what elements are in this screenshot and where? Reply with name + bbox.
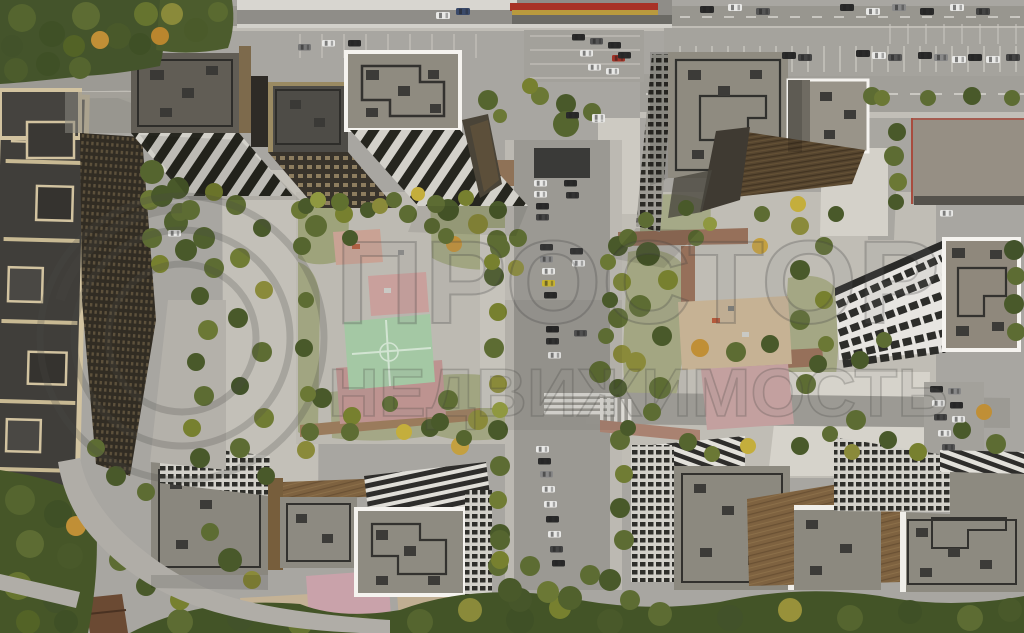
svg-text:НЕДВИЖИМОСТЬ: НЕДВИЖИМОСТЬ [328,355,948,431]
svg-text:ПРОСТОР: ПРОСТОР [335,217,940,349]
